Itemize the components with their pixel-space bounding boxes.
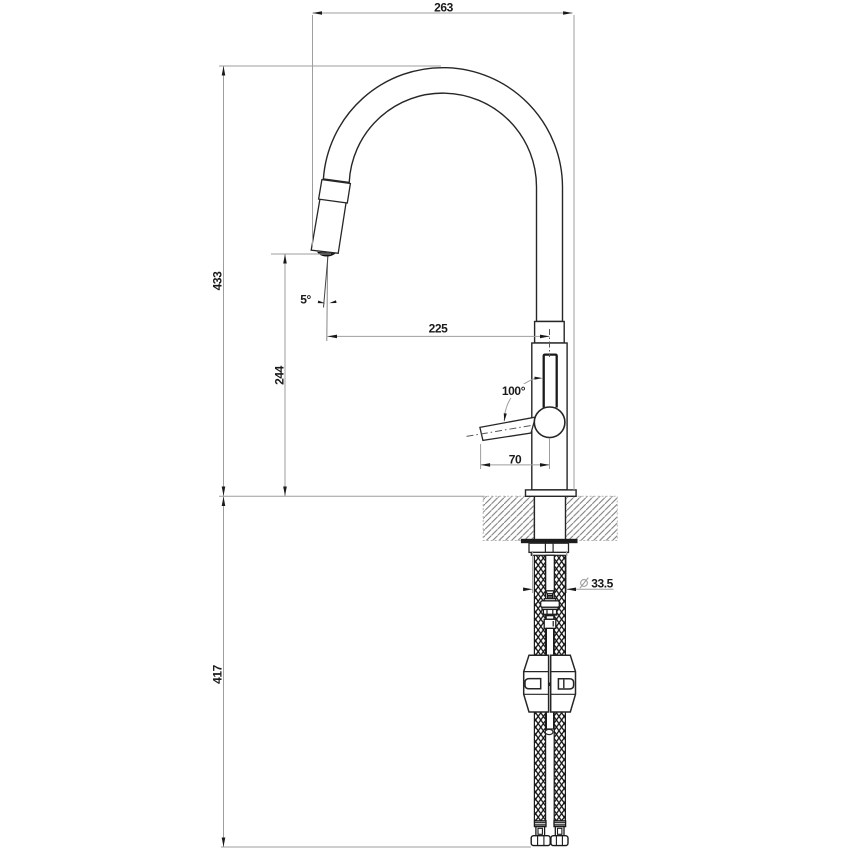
svg-text:244: 244 xyxy=(273,365,287,385)
svg-text:70: 70 xyxy=(509,452,522,466)
svg-text:33.5: 33.5 xyxy=(591,576,613,590)
svg-text:225: 225 xyxy=(429,322,449,336)
svg-text:417: 417 xyxy=(211,664,225,684)
svg-text:263: 263 xyxy=(434,1,454,15)
svg-text:5°: 5° xyxy=(300,293,311,307)
svg-text:100°: 100° xyxy=(502,384,526,398)
svg-text:433: 433 xyxy=(211,271,225,291)
